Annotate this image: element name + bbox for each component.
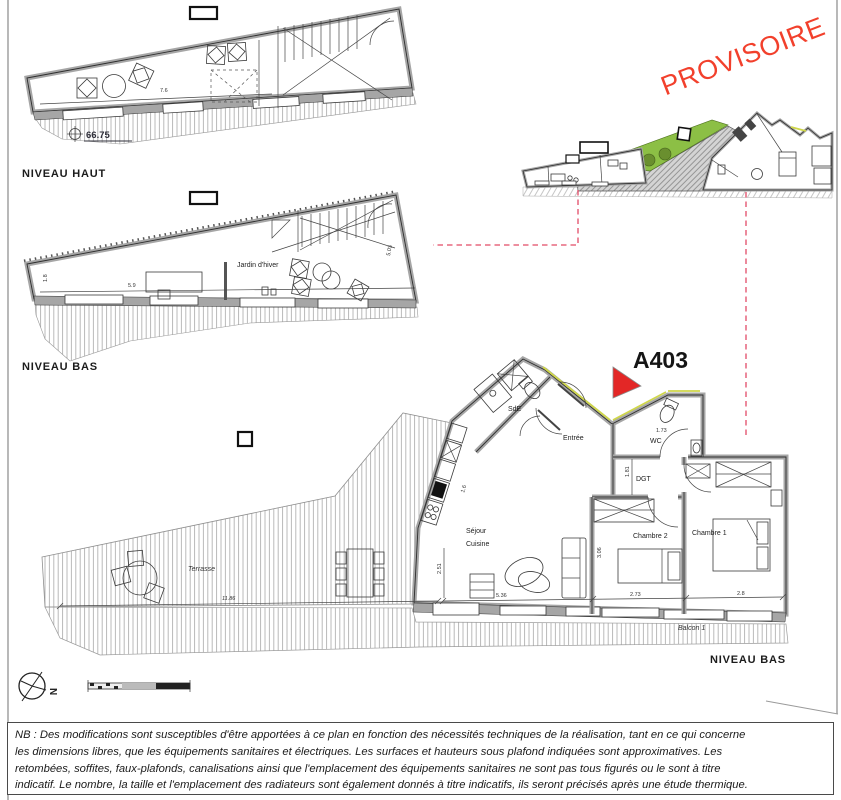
svg-text:5.9: 5.9: [128, 283, 136, 289]
plan-lower: Jardin d'hiver 5.9 1.8 5.03 NIVEAU BAS: [22, 192, 418, 373]
entree-label: Entrée: [563, 435, 584, 442]
north-label: N: [47, 688, 58, 695]
balcon-label: Balcon 1: [678, 625, 705, 632]
svg-text:1.8: 1.8: [43, 274, 49, 282]
chambre1-furniture: [713, 462, 782, 571]
svg-text:2.73: 2.73: [630, 592, 641, 598]
svg-text:2.51: 2.51: [437, 563, 443, 574]
chambre1-label: Chambre 1: [692, 530, 727, 537]
notes-line: les dimensions libres, que les équipemen…: [15, 744, 833, 761]
key-plan: [523, 113, 832, 198]
svg-text:66.75: 66.75: [86, 130, 110, 141]
notes-box: NB : Des modifications sont susceptibles…: [7, 722, 834, 795]
wc-toilet: [657, 398, 679, 425]
wc-basin: [691, 440, 702, 456]
lower-title: NIVEAU BAS: [22, 361, 98, 373]
svg-text:11.86: 11.86: [222, 596, 236, 602]
chambre2-furniture: [594, 499, 682, 583]
keyplan-chimney: [580, 142, 608, 153]
plan-canvas: 7.6 66.75 NIVEAU HAUT: [0, 0, 841, 800]
lower-chimney: [190, 192, 217, 204]
svg-text:1.81: 1.81: [625, 466, 631, 477]
notes-line: retombées, soffites, faux-plafonds, cana…: [15, 761, 833, 778]
main-title: NIVEAU BAS: [710, 654, 786, 666]
sde-label: SdE: [508, 406, 522, 413]
svg-text:1.73: 1.73: [656, 428, 667, 434]
lower-partition: [224, 262, 227, 300]
upper-chimney: [190, 7, 217, 19]
svg-text:2.8: 2.8: [737, 591, 745, 597]
dgt-label: DGT: [636, 476, 652, 483]
keyplan-chimney: [566, 155, 579, 163]
wc-label: WC: [650, 438, 662, 445]
svg-text:5.03: 5.03: [386, 245, 394, 257]
sejour-label-2: Cuisine: [466, 541, 489, 548]
plan-main: 5.36 2.73 2.8 2.51 1.6 1.81 1.73 3.06 11…: [42, 347, 788, 666]
apartment-id: A403: [633, 347, 688, 373]
keyplan-tree: [643, 154, 655, 166]
compass: N: [19, 672, 58, 701]
svg-text:3.06: 3.06: [597, 547, 603, 558]
notes-line: indicatif. Le nombre, la taille et l'emp…: [15, 777, 833, 794]
keyplan-roof-box: [677, 127, 691, 141]
terrasse-label: Terrasse: [188, 566, 215, 573]
leader-to-lower-plan: [433, 190, 578, 245]
svg-text:5.36: 5.36: [496, 593, 507, 599]
jardin-dhiver-label: Jardin d'hiver: [237, 262, 279, 269]
keyplan-tree: [659, 148, 671, 160]
upper-title: NIVEAU HAUT: [22, 168, 106, 180]
lower-balcony-hatch: [35, 304, 418, 361]
svg-text:7.6: 7.6: [160, 88, 168, 94]
keyplan-left-wing: [523, 149, 646, 187]
sejour-label-1: Séjour: [466, 528, 487, 535]
notes-line: NB : Des modifications sont susceptibles…: [15, 727, 833, 744]
svg-text:1.6: 1.6: [460, 484, 468, 493]
scale-bar: [88, 680, 190, 692]
chambre2-label: Chambre 2: [633, 533, 668, 540]
plan-upper: 7.6 66.75 NIVEAU HAUT: [22, 7, 416, 180]
drawing-sheet: 7.6 66.75 NIVEAU HAUT: [0, 0, 841, 800]
terrace-roof-box: [238, 432, 252, 446]
